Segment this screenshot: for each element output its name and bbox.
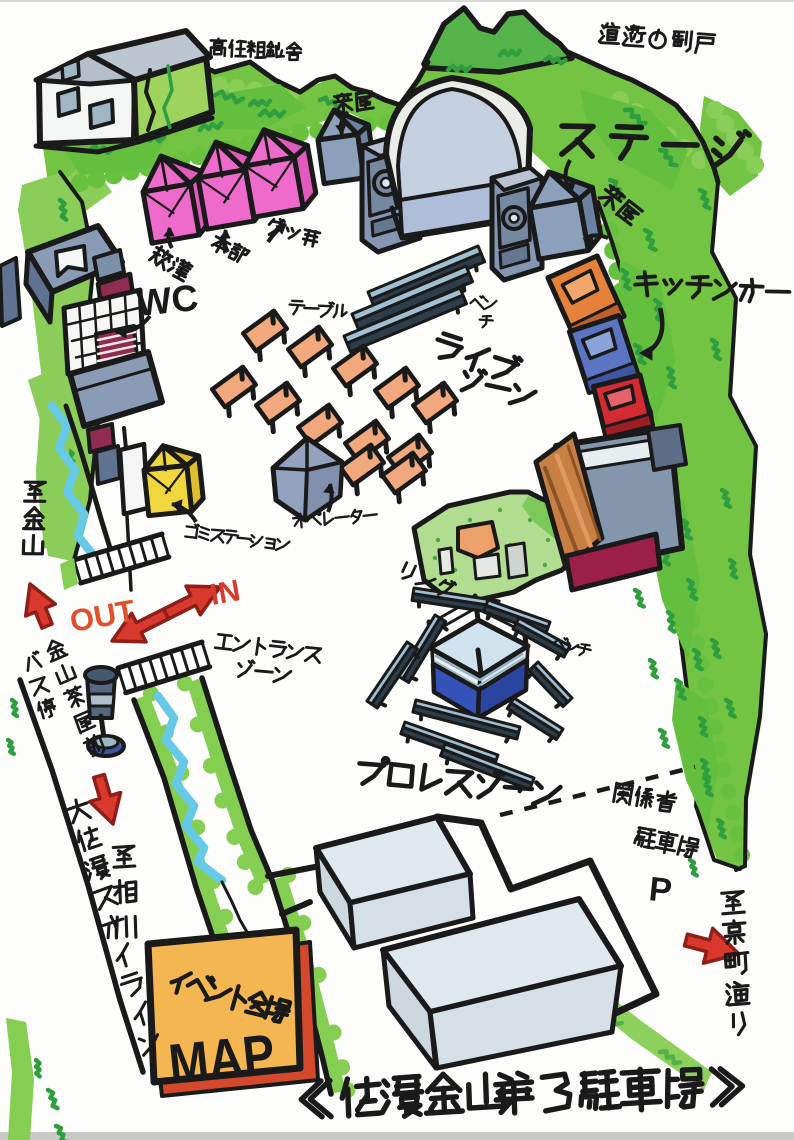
svg-text:WC: WC: [135, 277, 201, 324]
svg-text:P: P: [647, 870, 674, 910]
svg-text:MAP: MAP: [166, 1022, 278, 1096]
svg-text:IN: IN: [207, 574, 242, 612]
